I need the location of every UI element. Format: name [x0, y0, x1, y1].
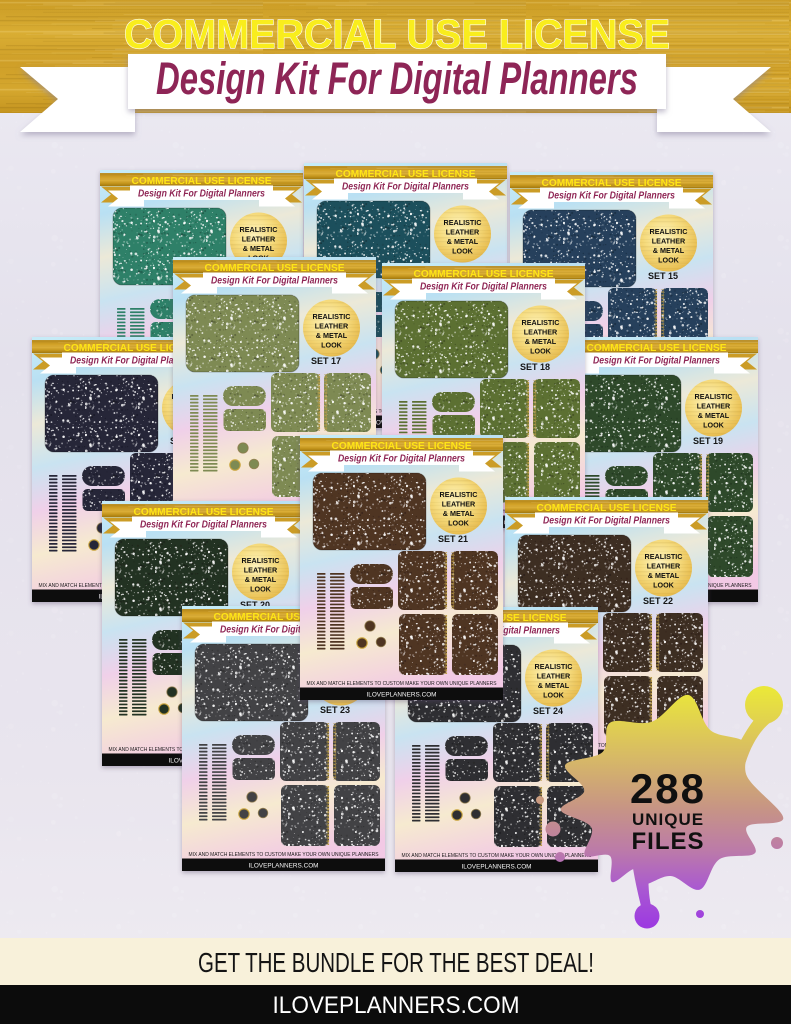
svg-text:UNIQUE: UNIQUE	[632, 810, 704, 829]
svg-text:SET 23: SET 23	[320, 705, 350, 715]
svg-text:SET 17: SET 17	[311, 356, 341, 366]
svg-text:FILES: FILES	[631, 828, 704, 855]
svg-text:SET 22: SET 22	[643, 596, 673, 606]
svg-text:SET 18: SET 18	[520, 362, 550, 372]
svg-text:SET 15: SET 15	[648, 271, 678, 281]
svg-text:SET 24: SET 24	[533, 706, 563, 716]
svg-text:Design Kit For Digital Planner: Design Kit For Digital Planners	[156, 53, 638, 104]
svg-text:ILOVEPLANNERS.COM: ILOVEPLANNERS.COM	[273, 992, 520, 1019]
svg-text:288: 288	[630, 765, 706, 812]
svg-text:SET 19: SET 19	[693, 436, 723, 446]
svg-text:COMMERCIAL USE LICENSE: COMMERCIAL USE LICENSE	[124, 11, 670, 57]
svg-text:SET 21: SET 21	[438, 534, 468, 544]
svg-text:GET THE BUNDLE FOR THE BEST DE: GET THE BUNDLE FOR THE BEST DEAL!	[198, 947, 594, 978]
